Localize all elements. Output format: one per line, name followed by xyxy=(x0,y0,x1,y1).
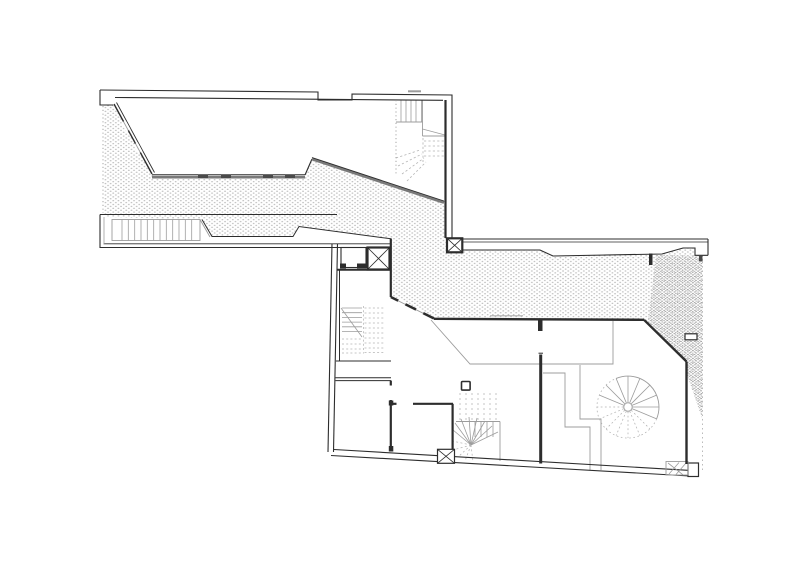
floor-plan-canvas xyxy=(0,0,810,570)
floor-plan-page xyxy=(0,0,810,570)
stipple-floor-texture xyxy=(104,104,703,420)
